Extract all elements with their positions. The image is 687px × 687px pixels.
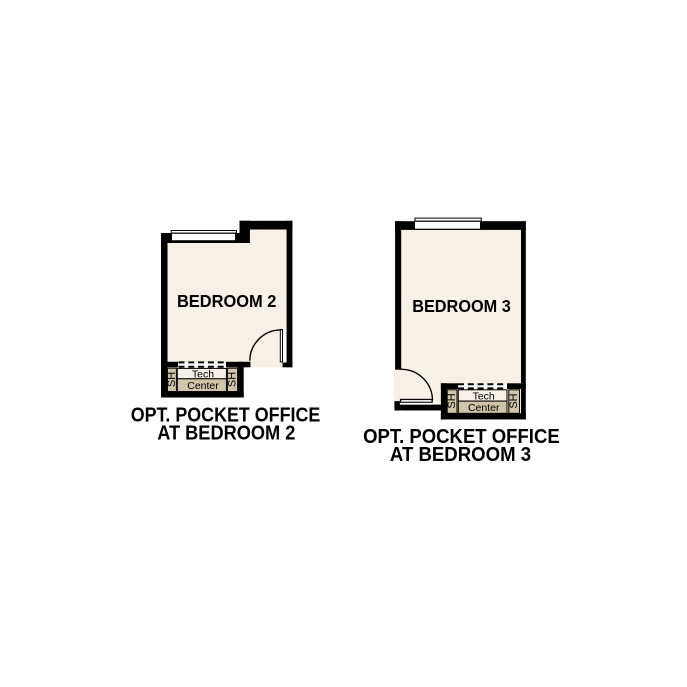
svg-text:SH: SH <box>508 393 520 408</box>
svg-text:AT BEDROOM 2: AT BEDROOM 2 <box>157 422 295 444</box>
svg-text:Center: Center <box>468 402 500 414</box>
svg-text:AT BEDROOM 3: AT BEDROOM 3 <box>390 444 531 466</box>
svg-text:BEDROOM 3: BEDROOM 3 <box>412 296 511 316</box>
svg-text:BEDROOM 2: BEDROOM 2 <box>177 291 277 311</box>
svg-text:SH: SH <box>446 393 458 408</box>
svg-text:SH: SH <box>166 372 178 387</box>
svg-text:SH: SH <box>227 372 239 387</box>
svg-text:Center: Center <box>187 380 219 392</box>
